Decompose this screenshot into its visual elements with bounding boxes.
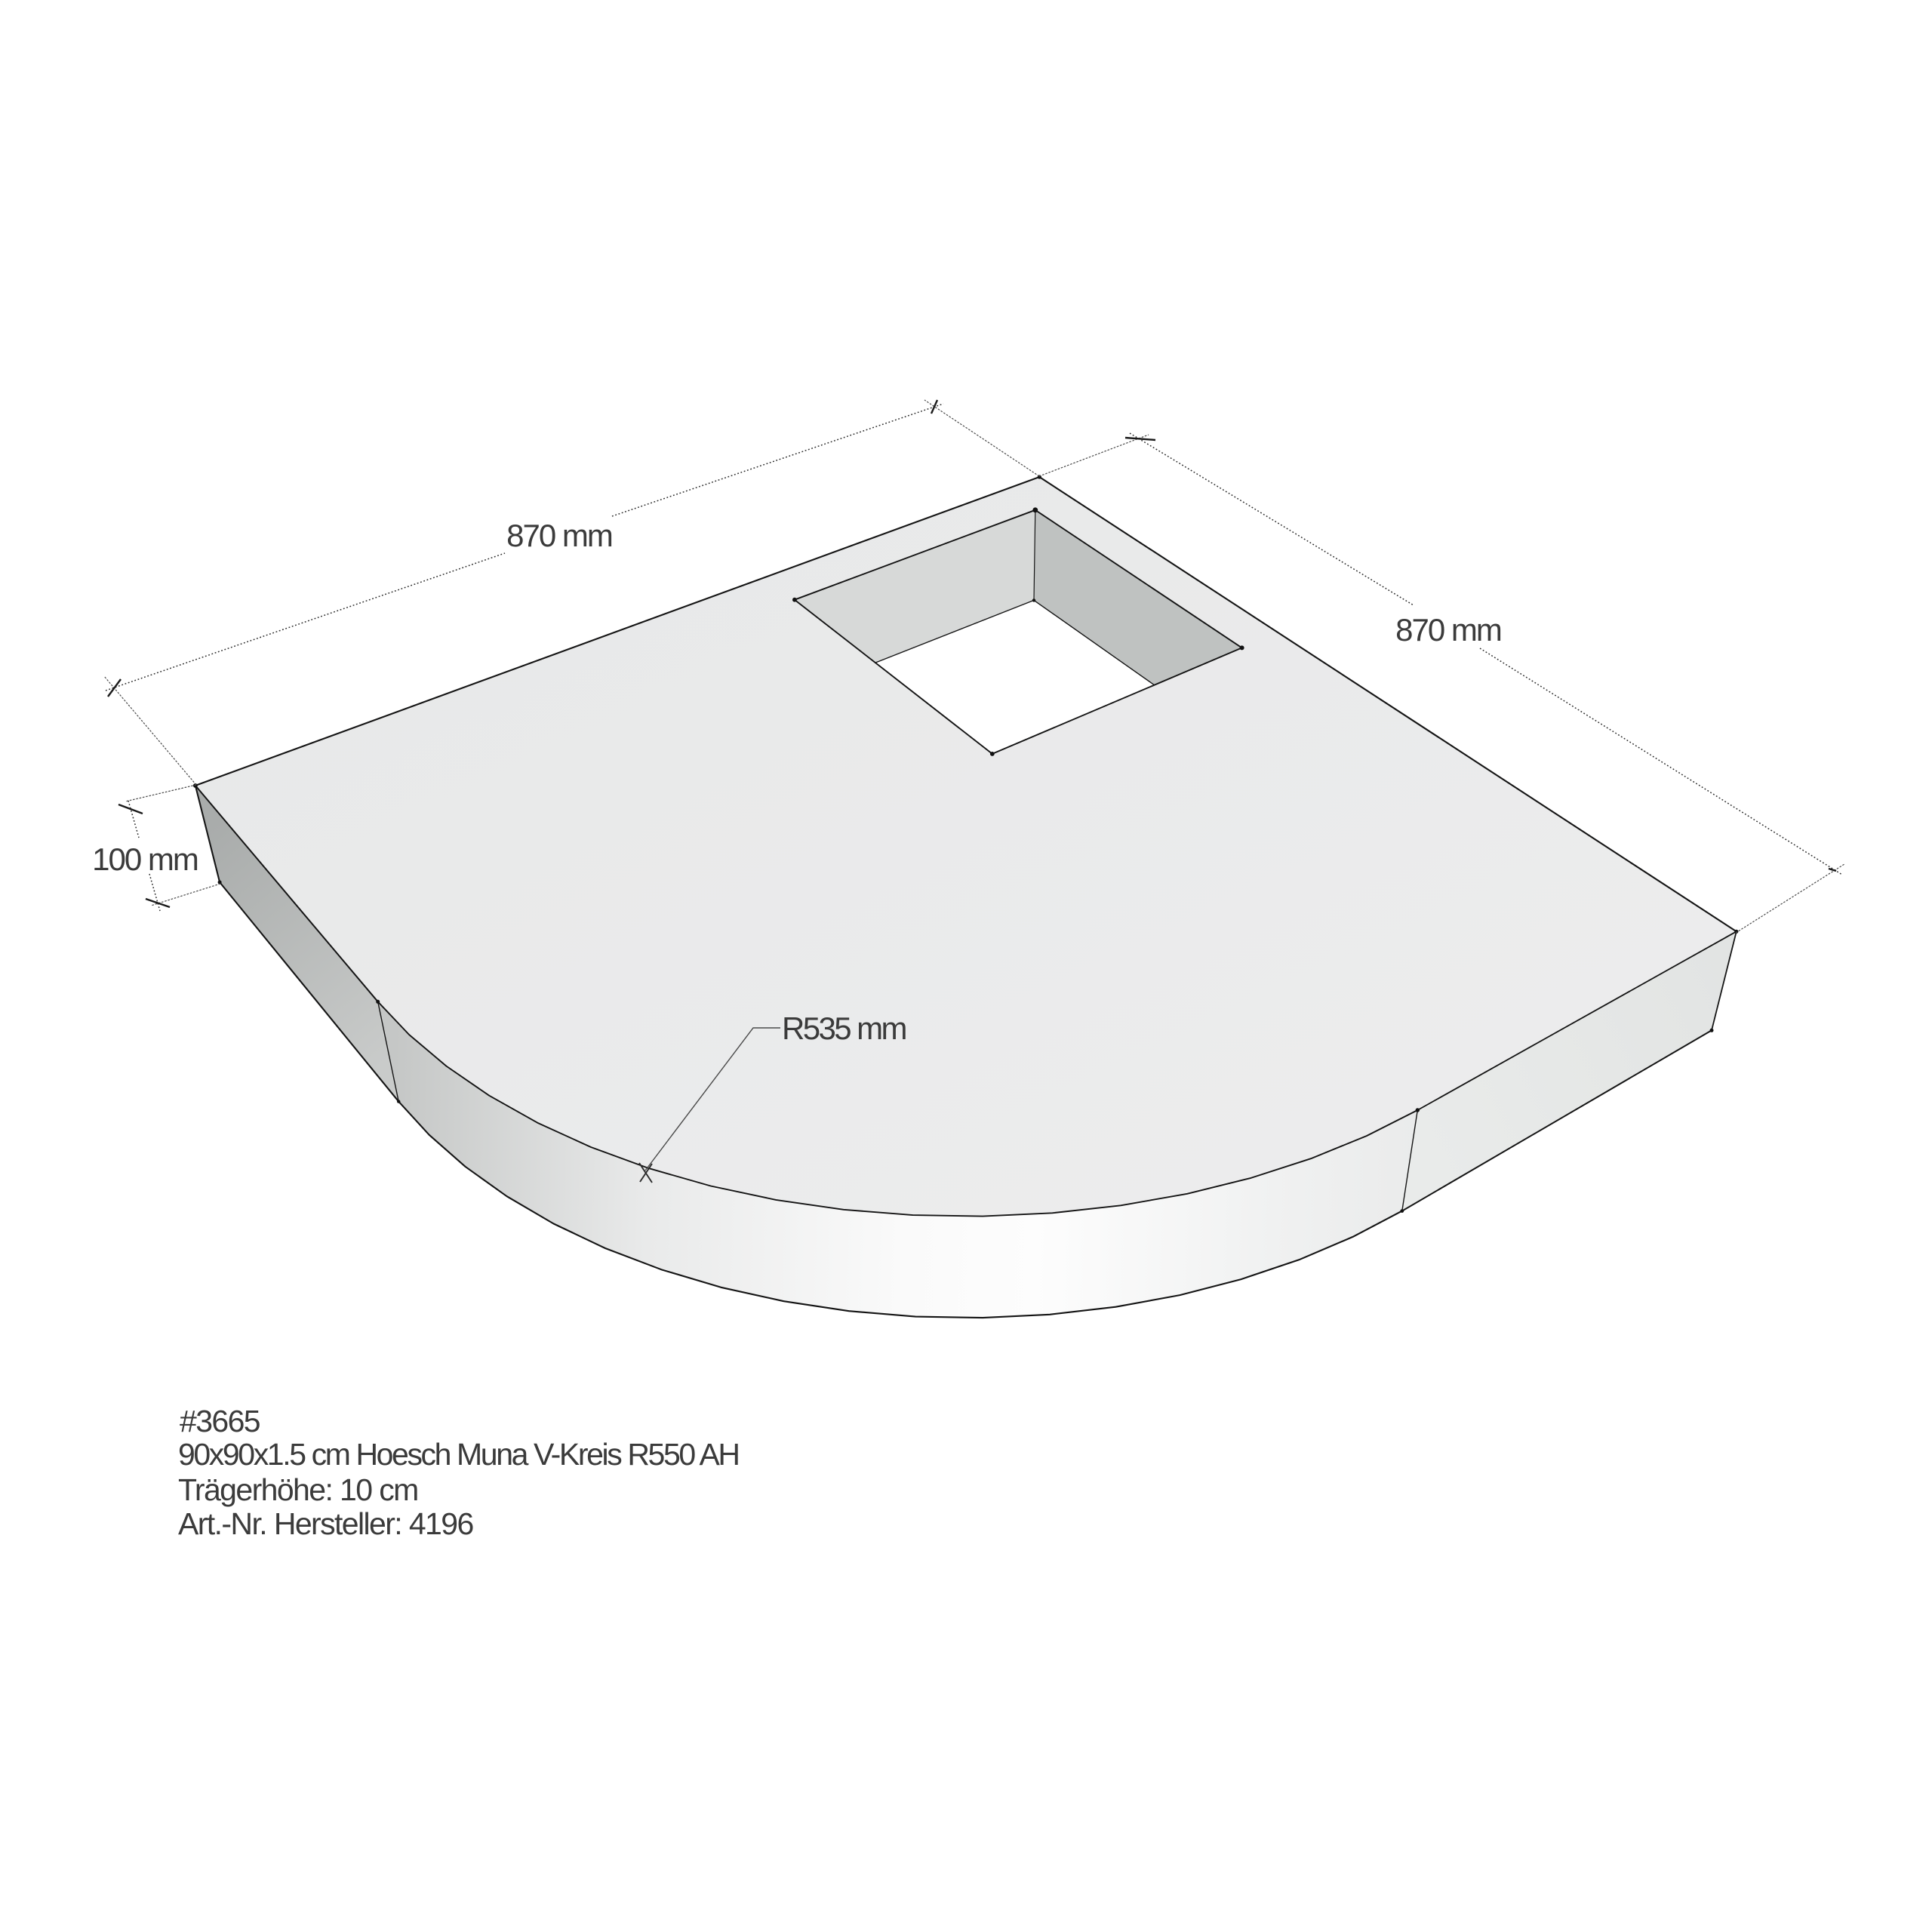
svg-text:870 mm: 870 mm <box>1395 612 1501 648</box>
svg-text:90x90x1.5 cm Hoesch Muna V-Kre: 90x90x1.5 cm Hoesch Muna V-Kreis R550 AH <box>178 1437 739 1472</box>
svg-text:Art.-Nr. Hersteller: 4196: Art.-Nr. Hersteller: 4196 <box>178 1506 473 1541</box>
svg-text:870 mm: 870 mm <box>506 518 612 553</box>
svg-text:#3665: #3665 <box>180 1404 260 1438</box>
svg-text:Trägerhöhe: 10 cm: Trägerhöhe: 10 cm <box>178 1472 418 1507</box>
svg-text:100 mm: 100 mm <box>92 841 198 877</box>
svg-text:R535 mm: R535 mm <box>782 1011 906 1046</box>
